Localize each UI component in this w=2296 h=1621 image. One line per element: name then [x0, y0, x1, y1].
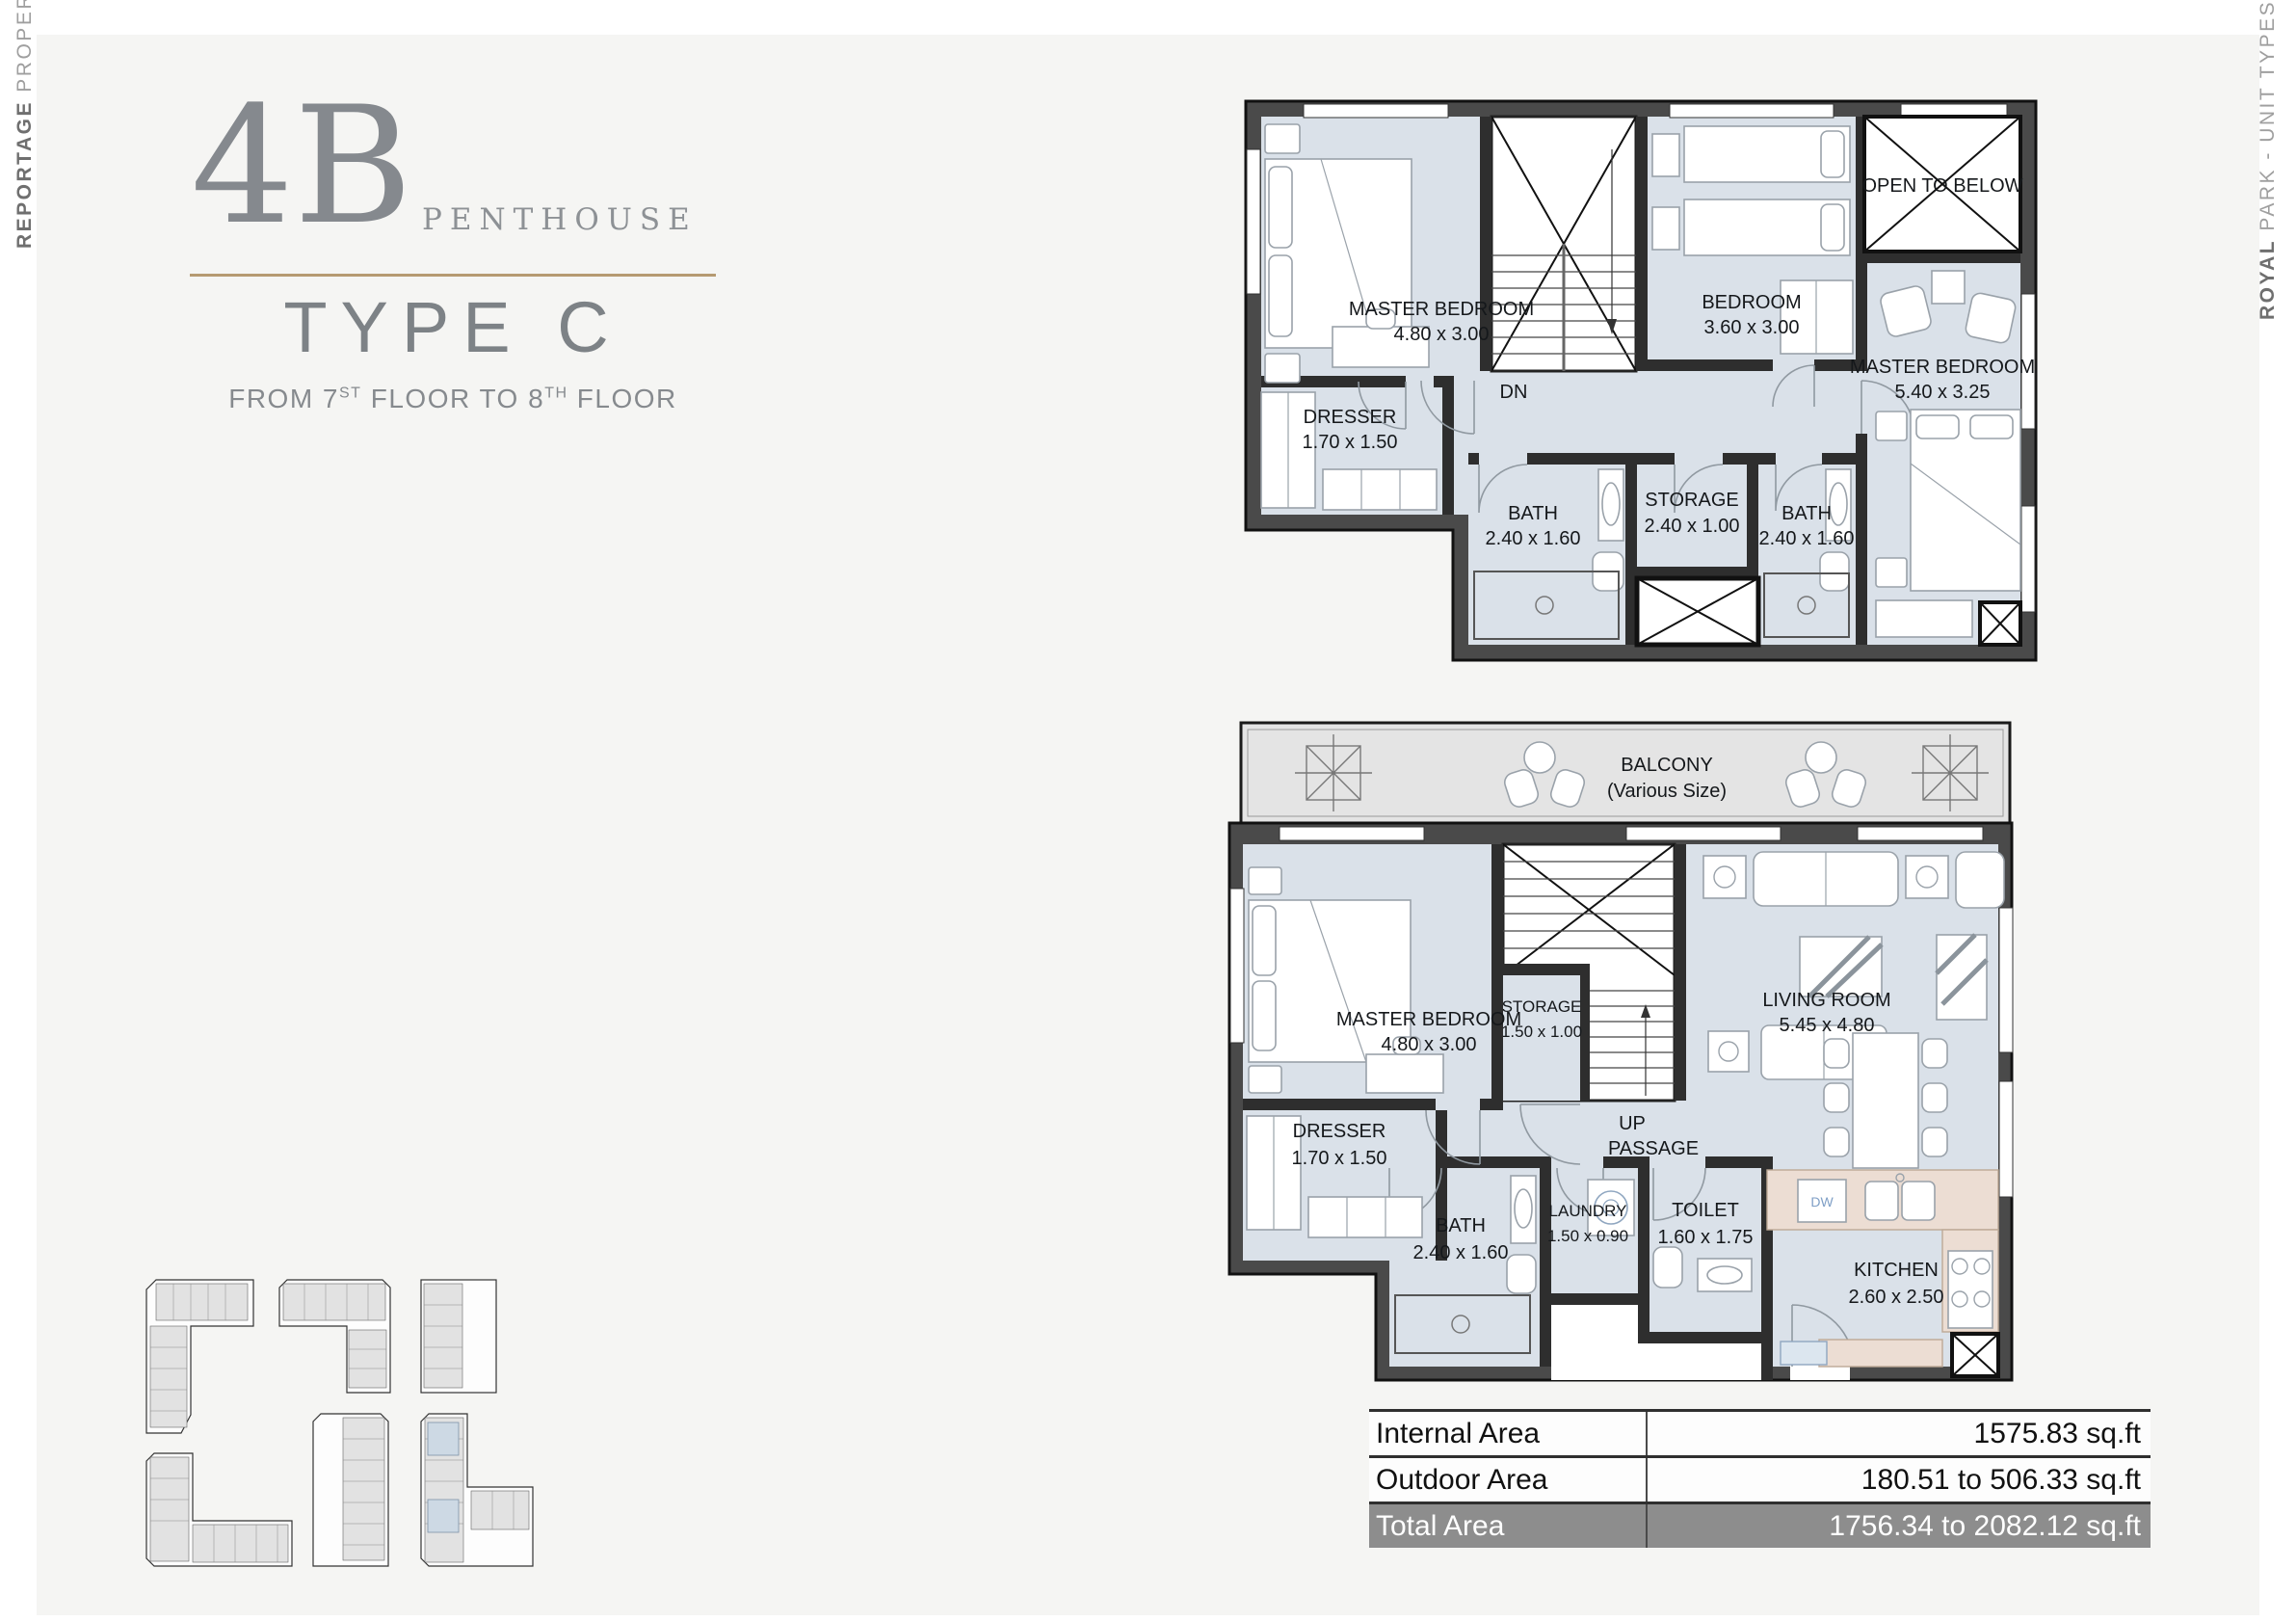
passage-label: PASSAGE	[1608, 1138, 1699, 1159]
dresser-unit	[1876, 600, 1972, 637]
nightstand	[1876, 558, 1907, 587]
wall	[1480, 1099, 1503, 1110]
wall	[1723, 453, 1776, 465]
armchair	[1956, 852, 2004, 908]
sink	[1865, 1182, 1898, 1220]
room-dims: 2.40 x 1.60	[1486, 528, 1581, 549]
table-row-total: Total Area 1756.34 to 2082.12 sq.ft	[1369, 1504, 2151, 1548]
pillow	[1916, 415, 1959, 438]
site-key-plans	[135, 1270, 549, 1588]
room-label: BEDROOM	[1702, 292, 1801, 313]
open-to-below-void: OPEN TO BELOW	[1861, 117, 2022, 252]
stair-label: DN	[1500, 382, 1528, 403]
pillow	[1821, 131, 1844, 177]
toilet	[1507, 1255, 1536, 1293]
dishwasher-label: DW	[1810, 1194, 1834, 1209]
area-row-value: 180.51 to 506.33 sq.ft	[1646, 1458, 2151, 1501]
wall	[1442, 387, 1454, 515]
room-dims: 1.70 x 1.50	[1303, 432, 1398, 453]
sink	[1902, 1182, 1935, 1220]
brochure-page: REPORTAGE PROPERTIES ROYAL PARK - UNIT T…	[0, 0, 2296, 1621]
planter-icon	[1295, 734, 1372, 811]
wall	[1675, 844, 1686, 1101]
desk	[1366, 1054, 1443, 1093]
brand-right-light: PARK - UNIT TYPES	[2256, 0, 2279, 239]
wall	[1638, 1332, 1773, 1343]
toilet	[1820, 552, 1849, 591]
window	[1280, 827, 1424, 840]
desk	[1652, 134, 1679, 176]
pillow	[1269, 167, 1292, 248]
area-row-label: Internal Area	[1369, 1412, 1646, 1455]
dining-chair	[1922, 1039, 1947, 1068]
wall	[1540, 1156, 1551, 1367]
dining-chair	[1922, 1128, 1947, 1156]
window	[1304, 104, 1448, 118]
toilet	[1653, 1247, 1682, 1288]
dining-set	[1824, 1033, 1947, 1168]
room-label: OPEN TO BELOW	[1861, 175, 2022, 197]
dining-chair	[1824, 1039, 1849, 1068]
unit-type-title: TYPE C	[164, 286, 742, 368]
duct-shaft	[1980, 602, 2020, 645]
stair-label: UP	[1619, 1113, 1646, 1134]
staircase-down: DN	[1491, 117, 1636, 403]
wall	[1822, 453, 1867, 465]
room-dims: 5.45 x 4.80	[1780, 1015, 1875, 1036]
lower-floor-plan: BALCONY (Various Size)	[1222, 715, 2045, 1390]
area-row-value: 1756.34 to 2082.12 sq.ft	[1646, 1504, 2151, 1548]
wall	[1491, 844, 1503, 1101]
pillow	[1253, 906, 1276, 975]
room-dims: 1.60 x 1.75	[1658, 1227, 1754, 1248]
room-label: DRESSER	[1304, 407, 1397, 428]
dining-chair	[1824, 1128, 1849, 1156]
nightstand	[1249, 1066, 1281, 1093]
armchair	[1965, 292, 2018, 345]
pillow	[1970, 415, 2013, 438]
elevator-shaft	[1637, 578, 1758, 645]
wall	[1636, 117, 1648, 371]
table-row: Outdoor Area 180.51 to 506.33 sq.ft	[1369, 1458, 2151, 1504]
nightstand	[1249, 867, 1281, 894]
room-label: MASTER BEDROOM	[1349, 299, 1534, 320]
floor-range-sup: ST	[339, 385, 361, 402]
duct-shaft	[1952, 1334, 1998, 1376]
room-label: MASTER BEDROOM	[1336, 1009, 1521, 1030]
room-dims: (Various Size)	[1607, 781, 1727, 802]
area-table: Internal Area 1575.83 sq.ft Outdoor Area…	[1369, 1409, 2151, 1548]
room-storage-lower: STORAGE 1.50 x 1.00	[1501, 964, 1590, 1101]
room-dims: 2.40 x 1.60	[1413, 1242, 1509, 1263]
room-label: KITCHEN	[1854, 1260, 1939, 1281]
dining-table	[1853, 1033, 1918, 1168]
wall	[1434, 376, 1454, 387]
pillow	[1253, 981, 1276, 1050]
pillow	[1821, 204, 1844, 251]
room-label: BATH	[1781, 503, 1832, 524]
shelf-unit	[1308, 1197, 1422, 1237]
rug	[1800, 937, 1882, 997]
window	[1626, 827, 1781, 840]
room-label: BATH	[1508, 503, 1558, 524]
upper-floor-plan: DN OPEN TO BELOW	[1236, 92, 2045, 670]
room-label: STORAGE	[1645, 490, 1738, 511]
wall	[1436, 1110, 1447, 1261]
dining-chair	[1922, 1083, 1947, 1112]
sink-basin	[1707, 1266, 1742, 1284]
room-dims: 3.60 x 3.00	[1704, 317, 1800, 338]
desk	[1652, 207, 1679, 250]
area-row-value: 1575.83 sq.ft	[1646, 1412, 2151, 1455]
shelf-unit	[1323, 469, 1437, 510]
wall	[1761, 1343, 1773, 1380]
nightstand	[1265, 354, 1300, 383]
floor-range-part: FROM 7	[228, 384, 339, 413]
unit-category-title: PENTHOUSE	[422, 202, 698, 237]
pillow	[1269, 255, 1292, 336]
sink-basin	[1515, 1189, 1532, 1228]
window	[1999, 1081, 2013, 1197]
room-label: LIVING ROOM	[1762, 990, 1890, 1011]
room-dims: 1.70 x 1.50	[1292, 1148, 1387, 1169]
fridge	[1781, 1342, 1827, 1365]
brand-left-light: PROPERTIES	[13, 0, 36, 100]
gold-divider	[190, 274, 716, 277]
floor-range-sup: TH	[544, 385, 567, 402]
plant-box	[1708, 1031, 1749, 1072]
wall	[1856, 434, 1867, 645]
room-dims: 4.80 x 3.00	[1394, 324, 1490, 345]
room-dims: 1.50 x 0.90	[1547, 1227, 1628, 1245]
brand-right-vertical: ROYAL PARK - UNIT TYPES	[2256, 0, 2280, 320]
area-row-label: Total Area	[1369, 1504, 1646, 1548]
window	[1999, 908, 2013, 1052]
unit-code-title: 4B	[191, 85, 412, 247]
room-label: BATH	[1436, 1215, 1486, 1236]
sink-basin	[1602, 483, 1620, 525]
wall	[1527, 453, 1675, 465]
rug	[1937, 935, 1987, 1020]
room-dims: 5.40 x 3.25	[1895, 382, 1991, 403]
room-label: TOILET	[1672, 1200, 1739, 1221]
brand-left-vertical: REPORTAGE PROPERTIES	[13, 0, 37, 249]
wall	[1468, 453, 1479, 465]
wall	[1436, 1156, 1540, 1168]
room-dims: 2.60 x 2.50	[1849, 1287, 1944, 1308]
wall	[1551, 1293, 1638, 1305]
armchair	[1879, 284, 1933, 338]
window	[1670, 104, 1834, 118]
brand-left-bold: REPORTAGE	[13, 100, 36, 249]
room-dims: 4.80 x 3.00	[1382, 1034, 1477, 1055]
room-label: LAUNDRY	[1549, 1202, 1627, 1220]
nightstand	[1265, 124, 1300, 153]
plant-box	[1906, 856, 1948, 898]
wall	[1243, 1099, 1436, 1110]
table-row: Internal Area 1575.83 sq.ft	[1369, 1412, 2151, 1458]
sink-basin	[1830, 483, 1847, 525]
window	[2021, 506, 2035, 612]
room-label: DRESSER	[1293, 1121, 1386, 1142]
floor-range-part: FLOOR TO 8	[361, 384, 544, 413]
dining-chair	[1824, 1083, 1849, 1112]
floor-range-subtitle: FROM 7ST FLOOR TO 8TH FLOOR	[164, 384, 742, 414]
room-dims: 2.40 x 1.60	[1759, 528, 1855, 549]
area-row-label: Outdoor Area	[1369, 1458, 1646, 1501]
kitchen-counter	[1819, 1340, 1942, 1367]
wall	[1648, 359, 1773, 371]
planter-icon	[1912, 734, 1989, 811]
nightstand	[1876, 412, 1907, 440]
plant-box	[1703, 856, 1746, 898]
room-dims: 2.40 x 1.00	[1645, 516, 1740, 537]
room-label: BALCONY	[1621, 755, 1713, 776]
room-balcony: BALCONY (Various Size)	[1241, 723, 2010, 823]
window	[1247, 149, 1260, 294]
wall	[1638, 1156, 1649, 1343]
window	[1230, 889, 1244, 1043]
side-table	[1932, 271, 1965, 304]
recess	[1638, 1343, 1761, 1380]
brand-right-bold: ROYAL	[2256, 239, 2279, 320]
recess	[1551, 1305, 1638, 1380]
window	[1858, 827, 1983, 840]
room-label: MASTER BEDROOM	[1850, 357, 2035, 378]
floor-range-part: FLOOR	[568, 384, 677, 413]
stove	[1948, 1251, 1993, 1328]
